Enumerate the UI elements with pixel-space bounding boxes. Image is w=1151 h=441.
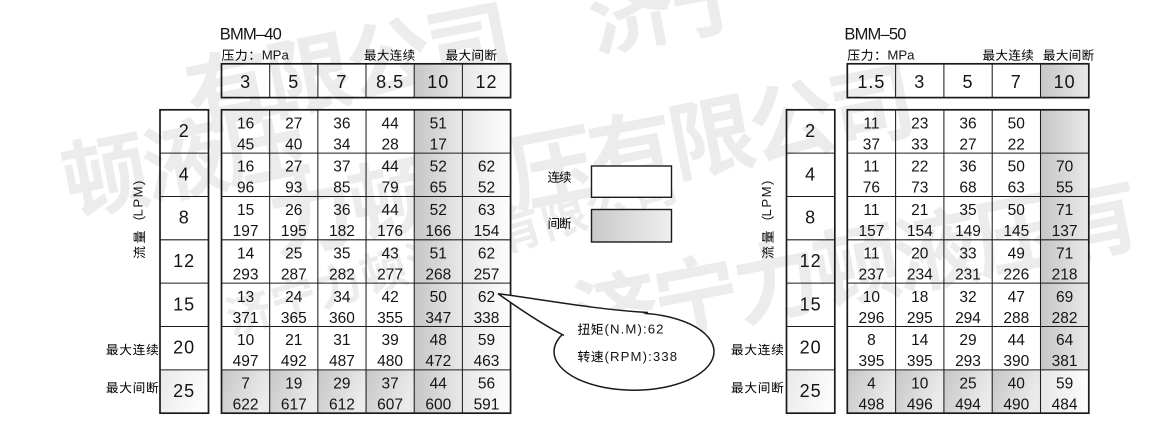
svg-text:(RPM):338: (RPM):338 xyxy=(605,349,679,364)
svg-text:50: 50 xyxy=(1008,115,1026,132)
svg-text:1.5: 1.5 xyxy=(857,72,885,92)
svg-text:4: 4 xyxy=(179,164,190,184)
svg-text:20: 20 xyxy=(911,245,929,262)
svg-text:40: 40 xyxy=(285,136,303,153)
svg-text:33: 33 xyxy=(911,136,928,153)
svg-text:277: 277 xyxy=(377,266,403,283)
svg-text:28: 28 xyxy=(381,136,398,153)
svg-text:36: 36 xyxy=(333,115,350,132)
svg-text:42: 42 xyxy=(381,289,398,306)
svg-text:16: 16 xyxy=(237,115,254,132)
svg-text:12: 12 xyxy=(475,72,497,92)
svg-text:600: 600 xyxy=(425,396,451,413)
svg-text:44: 44 xyxy=(1008,332,1026,349)
svg-text:154: 154 xyxy=(907,223,933,240)
svg-text:8.5: 8.5 xyxy=(376,72,404,92)
svg-text:182: 182 xyxy=(329,223,355,240)
svg-text:494: 494 xyxy=(955,396,981,413)
svg-text:365: 365 xyxy=(281,310,307,327)
svg-text:25: 25 xyxy=(285,245,302,262)
svg-text:MPa: MPa xyxy=(887,48,915,63)
svg-text:355: 355 xyxy=(377,310,403,327)
svg-text:15: 15 xyxy=(173,294,195,314)
svg-text:44: 44 xyxy=(430,375,448,392)
svg-text:71: 71 xyxy=(1056,202,1073,219)
svg-text:40: 40 xyxy=(1008,375,1026,392)
svg-text:218: 218 xyxy=(1052,266,1078,283)
svg-text:498: 498 xyxy=(858,396,884,413)
svg-text:12: 12 xyxy=(800,251,822,271)
svg-text:BMM–50: BMM–50 xyxy=(844,25,906,43)
svg-text:496: 496 xyxy=(907,396,933,413)
svg-text:17: 17 xyxy=(430,136,447,153)
svg-text:395: 395 xyxy=(858,353,884,370)
svg-text:3: 3 xyxy=(914,72,925,92)
svg-text:12: 12 xyxy=(173,251,195,271)
svg-text:11: 11 xyxy=(863,115,879,132)
svg-text:20: 20 xyxy=(173,338,195,358)
svg-text:27: 27 xyxy=(959,136,976,153)
svg-text:44: 44 xyxy=(381,202,399,219)
svg-text:5: 5 xyxy=(288,72,299,92)
svg-text:145: 145 xyxy=(1003,223,1029,240)
svg-text:10: 10 xyxy=(911,375,929,392)
svg-text:45: 45 xyxy=(237,136,254,153)
svg-text:65: 65 xyxy=(430,180,447,197)
svg-text:226: 226 xyxy=(1003,266,1029,283)
svg-text:11: 11 xyxy=(863,245,879,262)
svg-text:85: 85 xyxy=(333,180,350,197)
svg-text:73: 73 xyxy=(911,180,928,197)
svg-text:166: 166 xyxy=(425,223,451,240)
svg-text:176: 176 xyxy=(377,223,403,240)
svg-text:296: 296 xyxy=(858,310,884,327)
svg-text:591: 591 xyxy=(474,396,500,413)
svg-text:371: 371 xyxy=(233,310,259,327)
svg-text:70: 70 xyxy=(1056,159,1074,176)
svg-text:64: 64 xyxy=(1056,332,1074,349)
svg-text:293: 293 xyxy=(955,353,981,370)
svg-text:10: 10 xyxy=(237,332,255,349)
svg-text:32: 32 xyxy=(959,289,976,306)
svg-text:4: 4 xyxy=(805,164,816,184)
svg-text:487: 487 xyxy=(329,353,355,370)
svg-text:43: 43 xyxy=(381,245,398,262)
svg-text:463: 463 xyxy=(474,353,500,370)
svg-text:93: 93 xyxy=(285,180,302,197)
svg-text:21: 21 xyxy=(285,332,302,349)
svg-text:15: 15 xyxy=(800,294,822,314)
svg-text:34: 34 xyxy=(333,136,351,153)
svg-text:96: 96 xyxy=(237,180,254,197)
svg-text:44: 44 xyxy=(381,159,399,176)
svg-text:25: 25 xyxy=(959,375,976,392)
svg-text:7: 7 xyxy=(241,375,250,392)
svg-text:288: 288 xyxy=(1003,310,1029,327)
svg-text:231: 231 xyxy=(955,266,981,283)
svg-text:234: 234 xyxy=(907,266,933,283)
svg-text:197: 197 xyxy=(233,223,259,240)
svg-text:617: 617 xyxy=(281,396,307,413)
svg-text:71: 71 xyxy=(1056,245,1073,262)
svg-text:LPM: LPM xyxy=(759,185,774,217)
svg-text:44: 44 xyxy=(381,115,399,132)
svg-text:293: 293 xyxy=(233,266,259,283)
svg-text:7: 7 xyxy=(336,72,347,92)
svg-text:MPa: MPa xyxy=(262,48,290,63)
svg-text:(N.M):62: (N.M):62 xyxy=(605,322,665,337)
svg-text:33: 33 xyxy=(959,245,976,262)
svg-text:27: 27 xyxy=(285,159,302,176)
svg-text:36: 36 xyxy=(333,202,350,219)
svg-text:27: 27 xyxy=(285,115,302,132)
svg-text:59: 59 xyxy=(478,332,495,349)
svg-text:62: 62 xyxy=(478,159,495,176)
svg-text:37: 37 xyxy=(381,375,398,392)
svg-text:347: 347 xyxy=(425,310,451,327)
svg-text:497: 497 xyxy=(233,353,259,370)
svg-text:62: 62 xyxy=(478,289,495,306)
svg-text:484: 484 xyxy=(1052,396,1078,413)
svg-text:59: 59 xyxy=(1056,375,1073,392)
svg-text:63: 63 xyxy=(478,202,495,219)
svg-text:607: 607 xyxy=(377,396,403,413)
svg-text:21: 21 xyxy=(911,202,928,219)
svg-text:10: 10 xyxy=(1054,72,1076,92)
svg-text:20: 20 xyxy=(800,338,822,358)
svg-text:37: 37 xyxy=(863,136,880,153)
svg-text:63: 63 xyxy=(1008,180,1025,197)
svg-text:612: 612 xyxy=(329,396,355,413)
svg-text:2: 2 xyxy=(805,121,816,141)
svg-text:2: 2 xyxy=(179,121,190,141)
svg-text:23: 23 xyxy=(911,115,928,132)
svg-text:36: 36 xyxy=(959,159,976,176)
svg-text:282: 282 xyxy=(1052,310,1078,327)
svg-text:47: 47 xyxy=(1008,289,1025,306)
svg-text:15: 15 xyxy=(237,202,254,219)
svg-text:480: 480 xyxy=(377,353,403,370)
svg-text:69: 69 xyxy=(1056,289,1073,306)
svg-text:18: 18 xyxy=(911,289,928,306)
svg-text:34: 34 xyxy=(333,289,351,306)
svg-text:52: 52 xyxy=(430,159,447,176)
svg-text:137: 137 xyxy=(1052,223,1078,240)
svg-text:48: 48 xyxy=(430,332,447,349)
svg-text:10: 10 xyxy=(427,72,449,92)
svg-text:282: 282 xyxy=(329,266,355,283)
svg-text:8: 8 xyxy=(805,208,816,228)
svg-text:360: 360 xyxy=(329,310,355,327)
svg-text:25: 25 xyxy=(173,381,195,401)
svg-text:16: 16 xyxy=(237,159,254,176)
svg-text:8: 8 xyxy=(867,332,876,349)
svg-text:29: 29 xyxy=(959,332,976,349)
svg-text:7: 7 xyxy=(1011,72,1022,92)
svg-text:4: 4 xyxy=(867,375,876,392)
svg-text:37: 37 xyxy=(333,159,350,176)
svg-text:11: 11 xyxy=(863,159,879,176)
svg-text:149: 149 xyxy=(955,223,981,240)
svg-text:52: 52 xyxy=(430,202,447,219)
svg-text:39: 39 xyxy=(381,332,398,349)
svg-text:36: 36 xyxy=(959,115,976,132)
svg-text:LPM: LPM xyxy=(131,185,146,217)
svg-text:338: 338 xyxy=(474,310,500,327)
svg-text:492: 492 xyxy=(281,353,307,370)
svg-text:10: 10 xyxy=(863,289,881,306)
svg-text:257: 257 xyxy=(474,266,500,283)
svg-text:79: 79 xyxy=(381,180,398,197)
svg-text:35: 35 xyxy=(333,245,350,262)
svg-text:19: 19 xyxy=(285,375,302,392)
svg-text:31: 31 xyxy=(333,332,350,349)
svg-text:237: 237 xyxy=(858,266,884,283)
svg-text:154: 154 xyxy=(474,223,500,240)
svg-text:14: 14 xyxy=(237,245,255,262)
svg-text:56: 56 xyxy=(478,375,495,392)
svg-text:295: 295 xyxy=(907,310,933,327)
svg-text:50: 50 xyxy=(1008,159,1026,176)
svg-text:24: 24 xyxy=(285,289,303,306)
svg-text:490: 490 xyxy=(1003,396,1029,413)
svg-text:5: 5 xyxy=(962,72,973,92)
svg-text:395: 395 xyxy=(907,353,933,370)
svg-text:68: 68 xyxy=(959,180,976,197)
svg-text:11: 11 xyxy=(863,202,879,219)
svg-text:287: 287 xyxy=(281,266,307,283)
svg-text:14: 14 xyxy=(911,332,929,349)
svg-text:50: 50 xyxy=(1008,202,1026,219)
svg-text:BMM–40: BMM–40 xyxy=(220,25,282,43)
svg-text:26: 26 xyxy=(285,202,302,219)
svg-text:51: 51 xyxy=(430,245,447,262)
svg-text:268: 268 xyxy=(425,266,451,283)
svg-text:622: 622 xyxy=(233,396,259,413)
svg-text:472: 472 xyxy=(425,353,451,370)
svg-text:35: 35 xyxy=(959,202,976,219)
svg-text:25: 25 xyxy=(800,381,822,401)
svg-text:76: 76 xyxy=(863,180,880,197)
svg-text:50: 50 xyxy=(430,289,448,306)
svg-text:390: 390 xyxy=(1003,353,1029,370)
svg-text:13: 13 xyxy=(237,289,254,306)
svg-text:381: 381 xyxy=(1052,353,1078,370)
svg-text:157: 157 xyxy=(858,223,884,240)
svg-text:22: 22 xyxy=(911,159,928,176)
svg-text:29: 29 xyxy=(333,375,350,392)
svg-text:51: 51 xyxy=(430,115,447,132)
svg-text:49: 49 xyxy=(1008,245,1025,262)
svg-text:22: 22 xyxy=(1008,136,1025,153)
svg-text:8: 8 xyxy=(179,208,190,228)
svg-text:195: 195 xyxy=(281,223,307,240)
svg-text:55: 55 xyxy=(1056,180,1073,197)
svg-text:3: 3 xyxy=(240,72,251,92)
svg-text:294: 294 xyxy=(955,310,981,327)
svg-text:62: 62 xyxy=(478,245,495,262)
svg-text:52: 52 xyxy=(478,180,495,197)
